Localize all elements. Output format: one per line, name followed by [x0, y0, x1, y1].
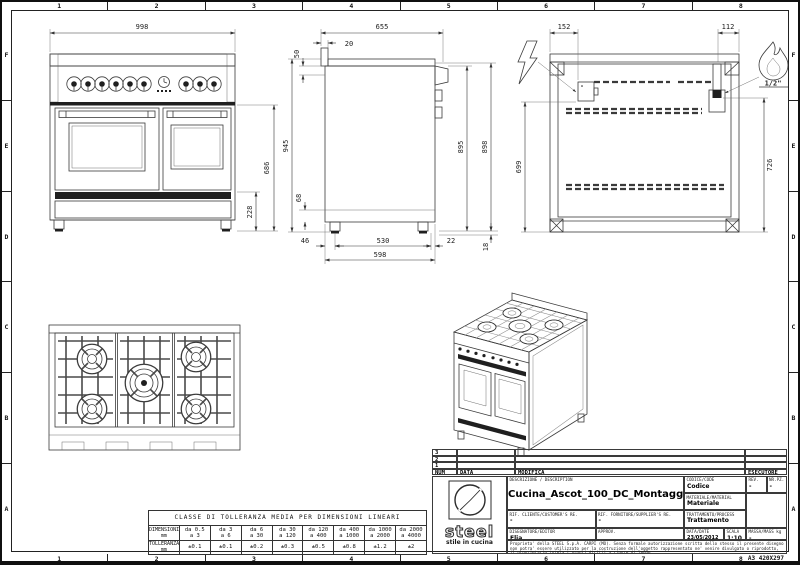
empty-cell: [746, 493, 787, 528]
legal-disclaimer: Proprieta' della STEEL S.p.A. CARPI (MO)…: [507, 540, 787, 554]
burner: [77, 344, 107, 374]
revision-num: 1: [432, 462, 457, 469]
burner: [77, 394, 107, 424]
dim-side-foot-height: 18: [482, 243, 490, 251]
clock-icon: [157, 77, 171, 93]
material-cell: MATERIALE/MATERIAL Materiale: [684, 493, 746, 510]
lightning-icon: [518, 41, 537, 84]
brand-name: steel: [433, 525, 506, 539]
rear-view: 1/2" 152 112 699 726: [515, 23, 788, 232]
dim-side-upstand: 20: [345, 40, 353, 48]
dim-rear-gas-offset: 112: [722, 23, 735, 31]
dim-rear-electric-height: 699: [515, 161, 523, 174]
dim-side-foot-span: 530: [377, 237, 390, 245]
control-knobs: [67, 77, 221, 91]
code-cell: CODICE/CODE Codice: [684, 476, 746, 494]
dim-side-total-height: 945: [282, 140, 290, 153]
dim-side-top-height: 50: [293, 50, 301, 58]
process-cell: TRATTAMENTO/PROCESS Trattamento: [684, 510, 746, 528]
customer-ref-cell: RIF. CLIENTE/CUSTOMER'S RE. -: [507, 510, 596, 528]
dim-side-height-outer: 898: [481, 141, 489, 154]
drawing-title: Cucina_Ascot_100_DC_Montaggio: [508, 489, 683, 500]
supplier-ref-cell: RIF. FORNITORE/SUPPLIER'S RE. -: [596, 510, 685, 528]
gas-connection-size: 1/2": [765, 80, 782, 88]
dim-side-foot-back: 46: [301, 237, 309, 245]
side-view: 655 20 50 945 68 46: [282, 23, 498, 264]
rev-cell: REV. -: [746, 476, 767, 494]
steel-logo-mark: [447, 480, 493, 520]
drawing-sheet: 1 2 3 4 5 6 7 8 1 2 3 4 5 6 7 8 F E D C …: [0, 0, 800, 565]
revision-cell: [457, 449, 515, 456]
scale-cell: SCALA 1:10: [724, 528, 746, 541]
tolerance-table: CLASSE DI TOLLERANZA MEDIA PER DIMENSION…: [148, 510, 427, 555]
dim-front-body-height: 686: [263, 162, 271, 175]
isometric-view: [454, 293, 587, 456]
pieces-cell: NR.PZ. -: [767, 476, 788, 494]
revision-num: 3: [432, 449, 457, 456]
revision-cell: [745, 449, 787, 456]
dim-front-base-height: 228: [246, 206, 254, 219]
revision-header-data: DATA: [457, 469, 515, 476]
dim-side-foot-front: 22: [447, 237, 455, 245]
mass-cell: MASSA/MASS kg -: [746, 528, 787, 541]
burner: [181, 342, 211, 372]
revision-cell: [515, 449, 745, 456]
dim-rear-electric-offset: 152: [558, 23, 571, 31]
electric-connection-box: [578, 82, 598, 101]
brand-tagline: stile in cucina: [433, 539, 506, 546]
revision-header-num: NUM: [432, 469, 457, 476]
revision-num: 2: [432, 456, 457, 463]
revision-cell: [457, 456, 515, 463]
approval-cell: APPROV.: [596, 528, 685, 541]
dim-side-depth: 655: [376, 23, 389, 31]
editor-cell: DISEGNATORE/EDITOR Elia: [507, 528, 596, 541]
revision-cell: [515, 462, 745, 469]
iso-burners: [478, 308, 563, 344]
revision-header-modifica: MODIFICA: [515, 469, 745, 476]
dim-side-height-inner: 895: [457, 141, 465, 154]
date-cell: DATA/DATE 23/05/2012: [684, 528, 724, 541]
revision-cell: [745, 456, 787, 463]
dim-side-plinth: 68: [295, 194, 303, 202]
top-view: [49, 325, 240, 450]
revision-cell: [457, 462, 515, 469]
description-cell: DESCRIZIONE / DESCRIPTION Cucina_Ascot_1…: [507, 476, 684, 511]
description-label: DESCRIZIONE / DESCRIPTION: [508, 477, 683, 483]
gas-connection: [709, 64, 725, 112]
revision-cell: [745, 462, 787, 469]
revision-cell: [515, 456, 745, 463]
burner: [181, 394, 211, 424]
title-block: 3 2 1 NUM DATA MODIFICA ESECUTORE steel …: [432, 449, 787, 554]
company-logo: steel stile in cucina: [432, 476, 507, 555]
tolerance-dimension-row: DIMENSIONImm da 0.5a 3 da 3a 6 da 6a 30 …: [149, 526, 427, 541]
dim-front-width: 998: [136, 23, 149, 31]
dim-rear-gas-height: 726: [766, 159, 774, 172]
front-view: 998 686 228: [50, 23, 278, 232]
tolerance-value-row: TOLLERANZAmm ±0.1 ±0.1 ±0.2 ±0.3 ±0.5 ±0…: [149, 540, 427, 555]
dim-side-base-depth: 598: [374, 251, 387, 259]
revision-header-esecutore: ESECUTORE: [745, 469, 787, 476]
tolerance-title: CLASSE DI TOLLERANZA MEDIA PER DIMENSION…: [149, 511, 427, 526]
center-burner: [125, 364, 163, 402]
